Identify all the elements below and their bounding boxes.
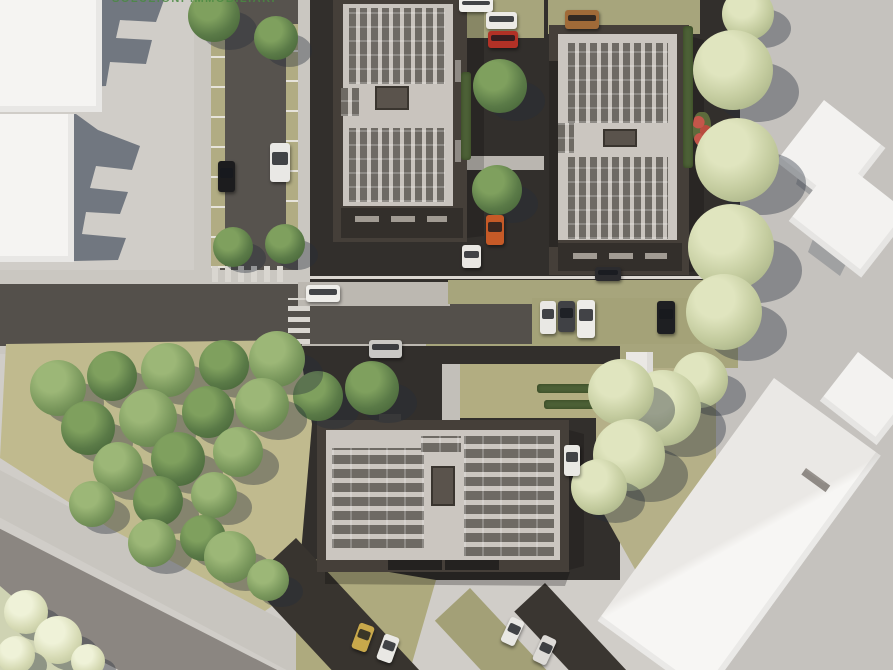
car-windows [542, 309, 555, 320]
window-band [645, 253, 667, 259]
car-brown-north [565, 10, 599, 29]
tree [71, 644, 105, 670]
tree [588, 359, 654, 425]
balcony-strip [549, 61, 558, 247]
car-windows [560, 308, 574, 318]
rooftop-access [603, 129, 637, 147]
entrance-ledge [388, 560, 442, 570]
car-red-courtyard [488, 31, 518, 48]
car-windows [381, 640, 396, 652]
car-white-parked-1 [540, 301, 556, 334]
car-windows [272, 152, 288, 164]
context-building-northwest-1 [0, 0, 102, 112]
car-windows [568, 15, 595, 21]
car-windows [598, 270, 619, 274]
watermark-text: SOLUZIONI IMMOBILIARI [112, 0, 412, 7]
car-windows [506, 623, 521, 636]
tree [69, 481, 115, 527]
car-white-top-edge [459, 0, 493, 12]
car-white-courtyard-south [462, 245, 481, 268]
car-windows [372, 344, 398, 350]
solar-panels [558, 123, 574, 153]
tree [345, 361, 399, 415]
car-windows [659, 309, 673, 320]
van-white-east-of-c [564, 445, 580, 476]
rooftop-access [431, 466, 455, 506]
rooftop-access [375, 86, 409, 110]
car-dark-on-road [595, 267, 621, 281]
path-to-building-c [442, 364, 460, 422]
solar-panels [332, 448, 424, 548]
car-windows [488, 222, 502, 232]
tree [128, 519, 176, 567]
window-band [609, 253, 633, 259]
tree [87, 351, 137, 401]
car-windows [356, 629, 371, 641]
hedge-east-of-building-a [461, 72, 471, 160]
window-band [391, 216, 415, 222]
tree [213, 227, 253, 267]
car-windows [566, 452, 579, 462]
solar-panels [464, 436, 554, 556]
tree [213, 427, 263, 477]
window-band [573, 253, 597, 259]
tree [693, 30, 773, 110]
residential-building-a [333, 0, 467, 242]
tree [191, 472, 237, 518]
tree [695, 118, 779, 202]
entrance-ledge [445, 560, 499, 570]
facade [341, 208, 463, 238]
van-white-parked [577, 300, 595, 338]
tree [265, 224, 305, 264]
car-windows [309, 289, 336, 294]
solar-panels [341, 88, 359, 116]
car-windows [538, 641, 553, 654]
solar-panels [349, 8, 445, 84]
car-gray-parked [558, 301, 575, 332]
car-windows [220, 168, 234, 178]
tree [247, 559, 289, 601]
tree [199, 340, 249, 390]
tree [0, 636, 35, 670]
car-black-parked [657, 301, 675, 334]
tree [472, 165, 522, 215]
car-silver-south [369, 340, 402, 358]
tree [133, 476, 183, 526]
car-windows [579, 309, 593, 321]
solar-panels [568, 43, 668, 123]
car-windows [491, 35, 515, 40]
tree [235, 378, 289, 432]
car-orange-courtyard [486, 215, 504, 245]
solar-panels [568, 157, 668, 239]
solar-panels [349, 128, 445, 202]
context-building-northwest-2 [0, 114, 74, 262]
tree [254, 16, 298, 60]
car-white-driveway [306, 285, 340, 302]
car-black-street [218, 161, 235, 192]
residential-building-b [549, 25, 689, 275]
window-band [355, 216, 379, 222]
van-white-street [270, 143, 290, 182]
tree [473, 59, 527, 113]
window-band [427, 216, 447, 222]
tree [686, 274, 762, 350]
car-windows [489, 16, 514, 21]
aerial-site-render: SOLUZIONI IMMOBILIARI [0, 0, 893, 670]
car-windows [464, 251, 479, 258]
car-windows [462, 1, 489, 6]
solar-panels [421, 436, 461, 452]
lane-line [310, 276, 734, 279]
residential-building-c [317, 420, 569, 572]
hedge-east-of-building-b [683, 26, 693, 168]
car-white-courtyard [486, 12, 517, 29]
